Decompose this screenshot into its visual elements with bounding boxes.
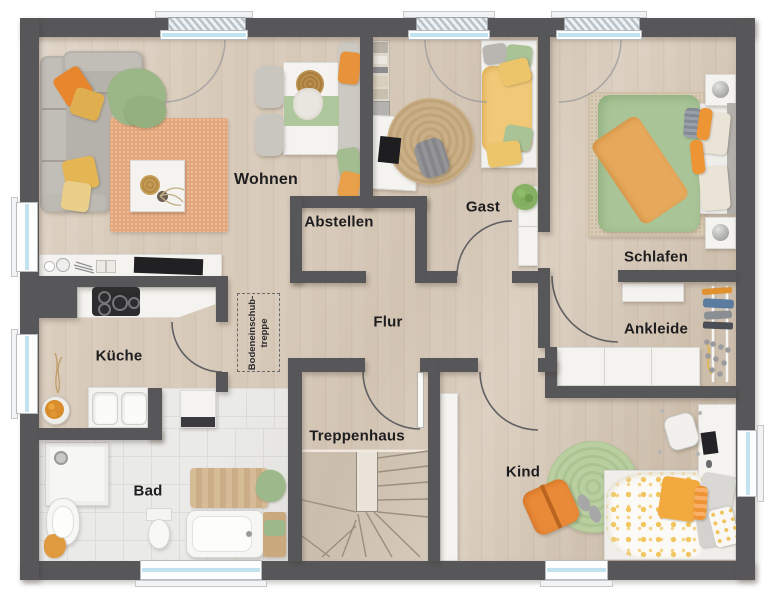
washbasin-bowl <box>52 506 74 538</box>
pillow-orange-striped <box>693 486 708 521</box>
bathtub-drain <box>246 531 252 537</box>
room-label-ankleide: Ankleide <box>624 321 688 338</box>
books <box>373 76 388 87</box>
wall <box>148 388 162 440</box>
sofa-cushion-divider <box>42 108 66 110</box>
books <box>373 67 388 73</box>
books <box>373 89 388 99</box>
wall-outer-left <box>20 18 39 580</box>
room-label-kind: Kind <box>506 464 540 481</box>
laptop <box>378 136 402 164</box>
towel-on-caddy <box>264 520 285 536</box>
decor-jar <box>106 260 116 273</box>
wall <box>290 196 427 208</box>
wall-outer-bottom <box>20 561 755 580</box>
mouse <box>706 460 712 468</box>
bench-pillow-orange <box>337 51 361 85</box>
shower-drain <box>54 451 68 465</box>
decor-jar <box>44 261 55 272</box>
laptop <box>701 431 719 455</box>
wall <box>538 37 550 232</box>
room-label-schlafen: Schlafen <box>624 249 688 266</box>
wall <box>288 358 365 372</box>
sink-basin <box>92 392 118 425</box>
room-label-kueche: Küche <box>96 348 143 365</box>
tall-wardrobe <box>440 393 458 561</box>
shower <box>45 442 109 506</box>
wall <box>545 347 557 398</box>
dining-chair <box>255 66 284 108</box>
table-lamp <box>712 224 729 241</box>
wall <box>290 196 302 283</box>
decor-jar <box>56 258 70 272</box>
cooktop-burner <box>98 303 111 316</box>
attic-ladder-text-line1: Bodeneinschub- <box>247 295 259 369</box>
wall <box>557 386 736 398</box>
sink-basin <box>121 392 147 425</box>
cooktop-burner <box>112 295 128 311</box>
wall <box>618 270 736 282</box>
wall <box>290 271 366 283</box>
wall <box>428 358 440 561</box>
dresser-divider <box>519 226 537 227</box>
wall <box>440 358 478 372</box>
pillow-pale-yellow <box>60 180 92 213</box>
room-label-gast: Gast <box>466 199 500 216</box>
wall <box>415 196 427 283</box>
room-label-bad: Bad <box>134 483 163 500</box>
wardrobe <box>557 347 700 386</box>
door-leaf <box>417 372 424 428</box>
wall <box>538 268 550 348</box>
decor-jar <box>96 260 106 273</box>
wall <box>512 271 540 283</box>
toilet-bowl <box>148 519 170 549</box>
room-label-abstellen: Abstellen <box>304 214 373 231</box>
wall <box>216 372 228 392</box>
wall <box>288 372 302 561</box>
books <box>374 56 387 64</box>
room-label-wohnen: Wohnen <box>234 171 298 189</box>
pillow-yellow <box>485 140 522 168</box>
tv <box>134 257 204 275</box>
wardrobe-divider <box>651 348 652 385</box>
wall <box>39 428 162 440</box>
washing-machine-door <box>181 417 215 427</box>
wall <box>216 276 228 322</box>
table-lamp <box>712 81 729 98</box>
room-label-treppenhaus: Treppenhaus <box>309 428 405 445</box>
rattan-tray <box>140 175 160 195</box>
stair-core <box>356 450 378 512</box>
books <box>373 42 388 53</box>
wall-counter-back <box>77 276 222 287</box>
sideboard <box>622 283 684 302</box>
floor-plan: Wohnen Abstellen Gast Schlafen Küche Flu… <box>0 0 775 598</box>
wardrobe-divider <box>604 348 605 385</box>
wall <box>538 358 557 372</box>
attic-ladder-annotation: Bodeneinschub- treppe <box>237 293 280 372</box>
fruit-oranges <box>45 400 64 419</box>
potted-plant <box>512 184 538 210</box>
wall <box>427 271 457 283</box>
wall-outer-top <box>20 18 755 37</box>
attic-ladder-text-line2: treppe <box>259 295 271 369</box>
dining-chair <box>255 114 284 156</box>
wall <box>360 37 373 208</box>
wall-pier <box>39 276 77 318</box>
room-label-flur: Flur <box>373 314 402 331</box>
plant-pot <box>157 191 168 202</box>
cooktop-burner <box>128 297 140 309</box>
bathtub-basin <box>192 516 252 552</box>
